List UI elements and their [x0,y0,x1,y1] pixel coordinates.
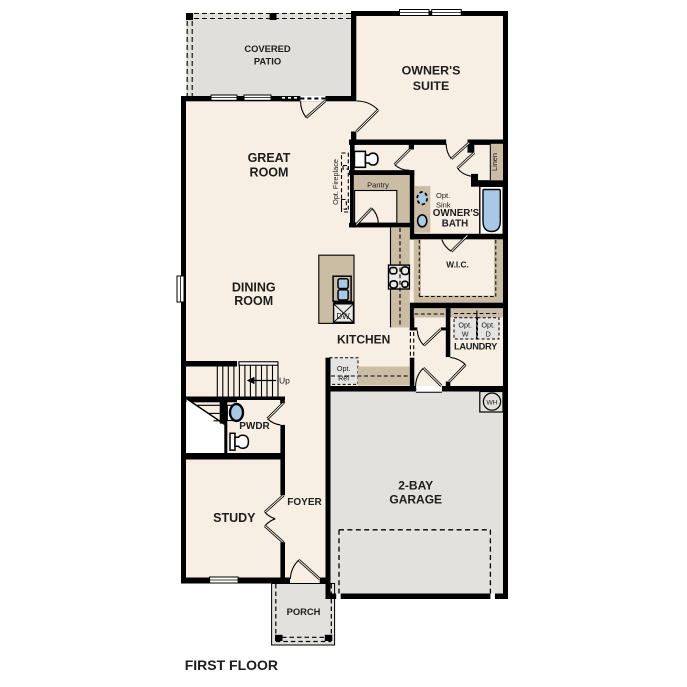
svg-text:KITCHEN: KITCHEN [337,333,390,347]
svg-text:SUITE: SUITE [413,79,450,93]
svg-text:W: W [462,330,469,339]
svg-text:PATIO: PATIO [254,56,281,67]
svg-text:Pantry: Pantry [367,181,389,190]
svg-text:Linen: Linen [490,153,499,171]
svg-text:STUDY: STUDY [213,511,256,525]
svg-text:LAUNDRY: LAUNDRY [454,342,498,352]
svg-text:D: D [486,330,491,339]
svg-text:BATH: BATH [442,219,468,230]
svg-text:Opt.: Opt. [458,321,472,330]
svg-text:GARAGE: GARAGE [389,493,442,507]
svg-text:Opt. Fireplace: Opt. Fireplace [331,159,340,205]
svg-text:2-BAY: 2-BAY [398,479,433,493]
svg-text:FIRST FLOOR: FIRST FLOOR [185,657,278,673]
svg-text:Ref: Ref [338,374,349,383]
svg-text:ROOM: ROOM [250,166,289,180]
svg-text:OWNER'S: OWNER'S [402,64,461,78]
svg-text:PWDR: PWDR [239,421,270,432]
svg-text:WH: WH [486,400,497,407]
svg-text:Opt.: Opt. [337,364,351,373]
svg-text:COVERED: COVERED [244,43,291,54]
svg-text:DINING: DINING [232,281,276,295]
svg-text:FOYER: FOYER [287,497,322,508]
svg-text:W.I.C.: W.I.C. [446,260,469,270]
svg-text:Opt.: Opt. [436,191,450,200]
svg-text:DW: DW [336,312,350,321]
svg-text:Opt.: Opt. [481,321,495,330]
svg-text:ROOM: ROOM [234,294,273,308]
svg-text:PORCH: PORCH [287,606,321,617]
svg-text:OWNER'S: OWNER'S [433,208,480,219]
svg-text:GREAT: GREAT [248,151,291,165]
svg-text:Up: Up [279,376,290,386]
